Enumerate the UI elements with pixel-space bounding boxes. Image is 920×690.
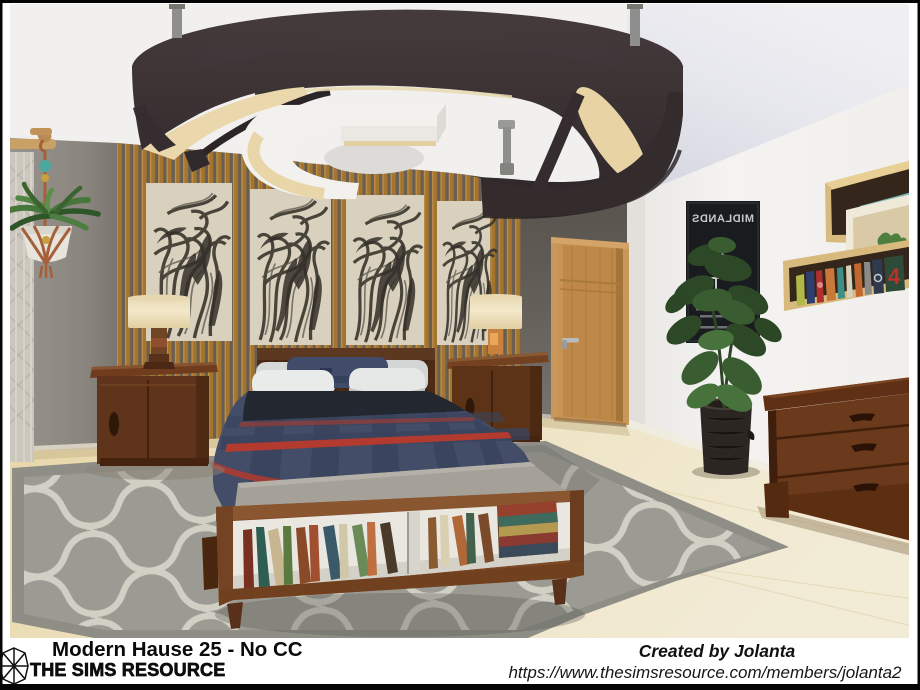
svg-text:4: 4	[888, 264, 901, 289]
svg-text:Created by Jolanta: Created by Jolanta	[639, 641, 796, 661]
svg-text:Modern Hause 25 - No CC: Modern Hause 25 - No CC	[52, 638, 303, 661]
svg-text:https://www.thesimsresource.co: https://www.thesimsresource.com/members/…	[508, 663, 902, 682]
svg-text:MIDLANDS: MIDLANDS	[692, 213, 754, 225]
svg-text:THE SIMS RESOURCE: THE SIMS RESOURCE	[30, 660, 225, 680]
